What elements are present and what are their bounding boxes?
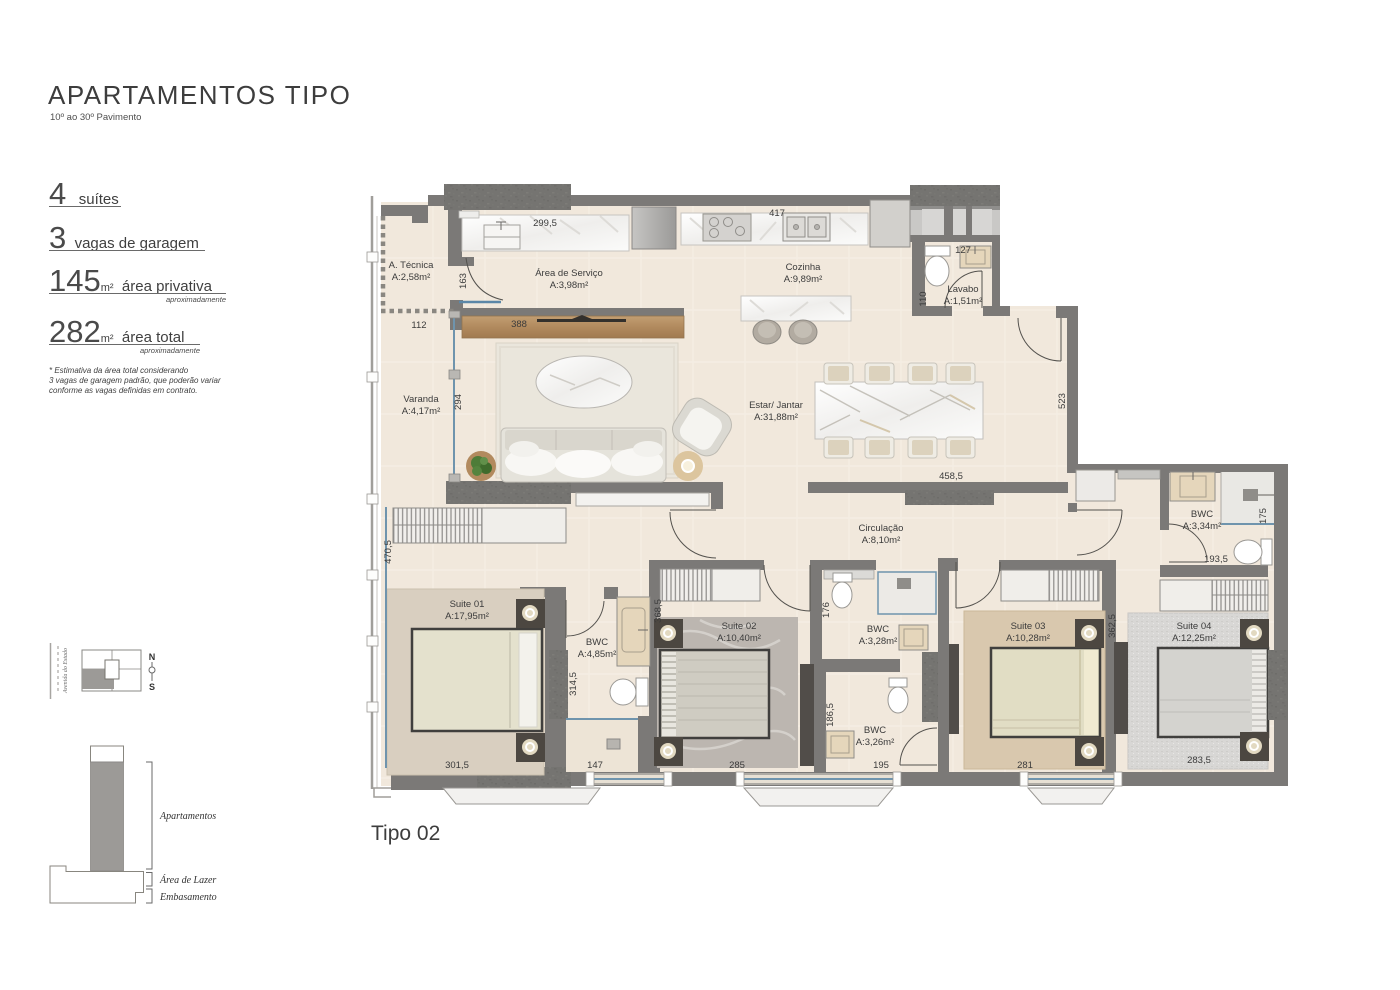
svg-text:A. Técnica: A. Técnica	[389, 260, 434, 271]
svg-text:A:31,88m²: A:31,88m²	[754, 412, 798, 423]
svg-text:314,5: 314,5	[568, 672, 579, 696]
svg-text:A:2,58m²: A:2,58m²	[392, 272, 431, 283]
svg-text:147: 147	[587, 760, 603, 771]
svg-text:Cozinha: Cozinha	[786, 262, 822, 273]
svg-text:Apartamentos: Apartamentos	[159, 811, 216, 822]
svg-text:175: 175	[1258, 508, 1269, 524]
svg-text:283,5: 283,5	[1187, 755, 1211, 766]
svg-text:A:12,25m²: A:12,25m²	[1172, 633, 1216, 644]
svg-text:186,5: 186,5	[825, 703, 836, 727]
svg-text:A:10,40m²: A:10,40m²	[717, 633, 761, 644]
svg-text:A:4,17m²: A:4,17m²	[402, 406, 441, 417]
svg-text:362,5: 362,5	[1107, 614, 1118, 638]
svg-text:A:8,10m²: A:8,10m²	[862, 535, 901, 546]
svg-text:BWC: BWC	[867, 624, 889, 635]
svg-text:Suite 01: Suite 01	[450, 599, 485, 610]
svg-text:523: 523	[1057, 393, 1068, 409]
svg-text:Suite 03: Suite 03	[1011, 621, 1046, 632]
svg-text:A:3,98m²: A:3,98m²	[550, 280, 589, 291]
svg-text:458,5: 458,5	[939, 471, 963, 482]
svg-text:Avenida do Estado: Avenida do Estado	[63, 648, 69, 694]
svg-text:Lavabo: Lavabo	[947, 284, 978, 295]
svg-text:110: 110	[918, 291, 929, 306]
svg-text:A:3,34m²: A:3,34m²	[1183, 521, 1222, 532]
svg-text:Suite 04: Suite 04	[1177, 621, 1212, 632]
svg-text:A:1,51m²: A:1,51m²	[944, 296, 983, 307]
svg-text:417: 417	[769, 208, 785, 219]
svg-text:112: 112	[411, 320, 426, 331]
svg-text:388: 388	[511, 319, 527, 330]
svg-text:163: 163	[458, 273, 469, 289]
svg-text:BWC: BWC	[1191, 509, 1213, 520]
svg-text:Varanda: Varanda	[403, 394, 439, 405]
svg-text:N: N	[149, 652, 156, 662]
svg-text:299,5: 299,5	[533, 218, 557, 229]
svg-text:127: 127	[955, 245, 971, 256]
svg-text:470,5: 470,5	[383, 540, 394, 564]
svg-text:Estar/ Jantar: Estar/ Jantar	[749, 400, 803, 411]
svg-text:BWC: BWC	[864, 725, 886, 736]
svg-text:A:9,89m²: A:9,89m²	[784, 274, 823, 285]
svg-text:281: 281	[1017, 760, 1033, 771]
svg-text:Embasamento: Embasamento	[159, 892, 217, 903]
svg-text:A:17,95m²: A:17,95m²	[445, 611, 489, 622]
svg-text:195: 195	[873, 760, 889, 771]
svg-text:S: S	[149, 682, 155, 692]
svg-text:A:4,85m²: A:4,85m²	[578, 649, 617, 660]
svg-text:176: 176	[821, 602, 832, 618]
svg-text:285: 285	[729, 760, 745, 771]
svg-text:368,5: 368,5	[653, 599, 664, 623]
svg-text:301,5: 301,5	[445, 760, 469, 771]
svg-text:A:3,28m²: A:3,28m²	[859, 636, 898, 647]
svg-text:BWC: BWC	[586, 637, 608, 648]
svg-text:A:3,26m²: A:3,26m²	[856, 737, 895, 748]
svg-text:Área de Lazer: Área de Lazer	[159, 874, 216, 886]
svg-text:A:10,28m²: A:10,28m²	[1006, 633, 1050, 644]
svg-text:294: 294	[453, 394, 464, 410]
svg-text:Suite 02: Suite 02	[722, 621, 757, 632]
svg-text:193,5: 193,5	[1204, 554, 1228, 565]
svg-text:Área de Serviço: Área de Serviço	[535, 268, 603, 279]
svg-text:Circulação: Circulação	[859, 523, 904, 534]
